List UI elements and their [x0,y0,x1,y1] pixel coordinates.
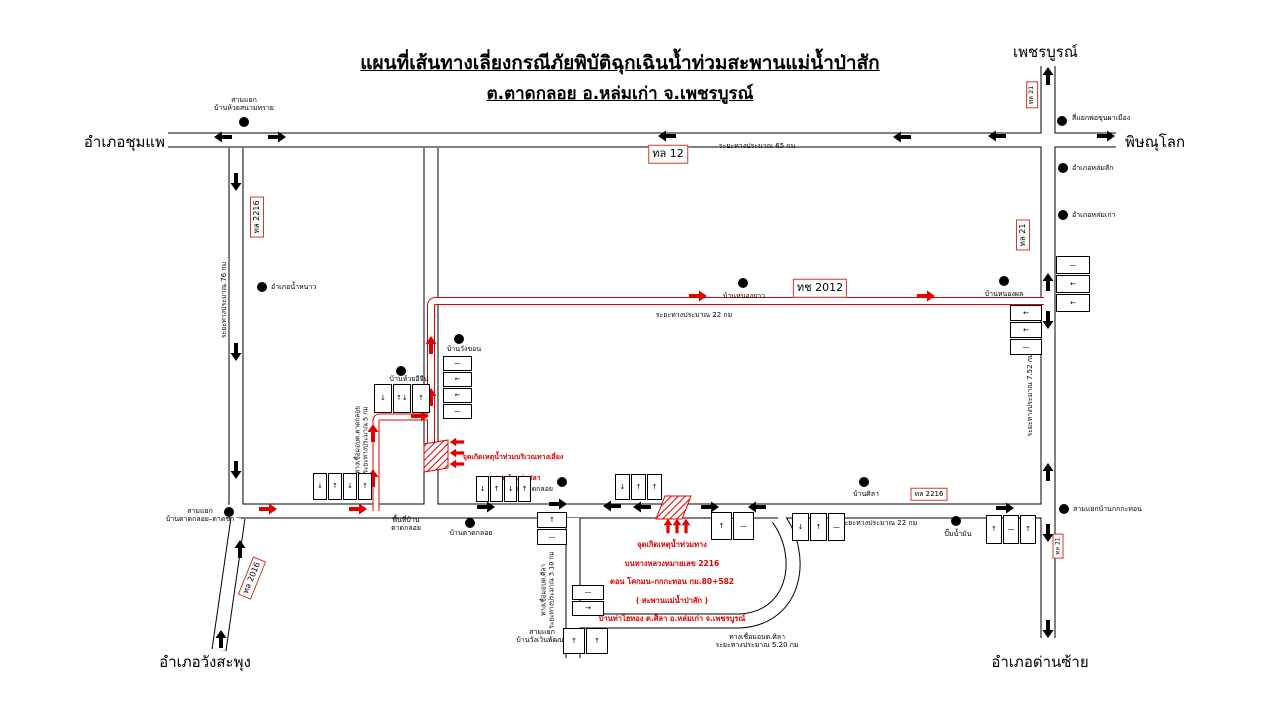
distance-label: ทางเชื่อมอบต.ศิลา ระยะทางประมาณ 5.20 กม [715,633,798,650]
evacuation-route-map: แผนที่เส้นทางเลี่ยงกรณีภัยพิบัติฉุกเฉินน… [0,0,1280,720]
map-title-line2: ต.ตาดกลอย อ.หล่มเก่า จ.เพชรบูรณ์ [340,80,900,107]
directional-sign: ↓↑— [792,513,845,541]
destination-amphoe-chum-phae: อำเภอชุมแพ [84,130,165,154]
flood-note-pasak-bridge: จุดเกิดเหตุน้ำท่วมทาง บนทางหลวงหมายเลข 2… [599,531,746,632]
road-number-badge: ทล 21 [1053,533,1064,558]
place-label: สามแยก บ้านวังเวินพัฒนา [516,628,567,645]
destination-amphoe-wang-saphung: อำเภอวังสะพุง [159,650,251,674]
sign-plate: ↑ [986,515,1002,544]
junction-ban-kok-kathon [1059,504,1069,514]
sign-plate: — [1010,339,1042,355]
sign-plate: ↑ [563,628,585,654]
place-label: อำเภอหล่มเก่า [1072,211,1115,219]
distance-label: ทางเชื่อมอบต.ศิลา ระยะทางประมาณ 3.10 กม [540,551,555,628]
distance-label: ระยะทางประมาณ 22 กม [841,519,918,527]
sign-plate: ← [443,372,472,387]
sign-plate: ↑ [537,512,567,528]
junction-ban-huai-sanam-sai [239,117,249,127]
place-label: สามแยก บ้านตาดกลอย–ตาดข่า [166,507,234,524]
sign-plate: → [572,601,604,616]
flood-note-line1: จุดเกิดเหตุน้ำท่วมทาง [599,540,746,549]
ban-tat-kloi [465,518,475,528]
sign-plate: ↑ [711,512,732,540]
place-label: ปั๊มน้ำมัน [944,530,971,538]
sign-plate: ↑ [358,473,372,500]
flood-note-line2: บนทางหลวงหมายเลข 2216 [599,559,746,568]
sign-plate: ↓ [343,473,357,500]
sign-plate: — [1003,515,1019,544]
sign-plate: ↓ [374,384,392,413]
junction-pho-khun-pha-mueang [1057,116,1067,126]
map-title: แผนที่เส้นทางเลี่ยงกรณีภัยพิบัติฉุกเฉินน… [340,48,900,107]
place-label: พื้นที่บ้าน ตาดกลอย [391,516,421,533]
sign-plate: ↑ [518,476,531,502]
sign-plate: ← [1010,305,1042,321]
sign-plate: ↑ [1020,515,1036,544]
sign-plate: ↓ [615,474,630,500]
sign-plate: ↑↓ [393,384,411,413]
sign-plate: — [828,513,845,541]
sign-plate: ↓ [313,473,327,500]
distance-label: ระยะทางประมาณ 7.52 กม [1026,353,1034,436]
flood-note-line5: บ้านท่าไฮทอง ต.ศิลา อ.หล่มเก่า จ.เพชรบูร… [599,614,746,623]
road-number-badge: ทล 2216 [911,488,948,501]
ban-wang-khon [454,334,464,344]
sign-plate: ← [1056,275,1090,293]
directional-sign: ↑— [537,512,567,545]
sign-plate: ↑ [647,474,662,500]
sign-plate: ↓ [504,476,517,502]
place-label: บ้านศิลา [853,490,879,498]
distance-label: ระยะทางประมาณ 22 กม [656,311,733,319]
road-number-badge: ทช 2012 [793,279,847,298]
road-number-badge: ทล 12 [648,145,688,164]
ban-nong-yao [738,278,748,288]
place-label: สี่แยกพ่อขุนผาเมือง [1072,114,1130,122]
sign-plate: ↑ [586,628,608,654]
amphoe-lom-sak [1058,163,1068,173]
directional-sign: ↓↑↓↑ [313,473,372,500]
sign-plate: — [443,356,472,371]
obt-tat-kloi [557,477,567,487]
directional-sign: ↓↑↑ [615,474,662,500]
amphoe-lom-kao [1058,210,1068,220]
destination-phetchabun: เพชรบูรณ์ [1013,40,1078,64]
ban-sila [859,477,869,487]
directional-sign: ↑—↑ [986,515,1036,544]
sign-plate: ← [443,388,472,403]
directional-sign: ↑— [711,512,754,540]
place-label: บ้านหนองผล [985,290,1024,298]
place-label: สามแยก บ้านห้วยสนามทราย [214,96,274,113]
ban-nong-phon [999,276,1009,286]
flood-hatch-bypass-bridge [424,440,448,472]
distance-label: ระยะทางประมาณ 76 กม [220,262,228,339]
directional-sign: —←← [1056,256,1090,312]
flood-note-line3: ตอน โคกมน–กกกะทอน กม.80+582 [599,577,746,586]
sign-plate: ← [1056,294,1090,312]
place-label: อำเภอหล่มสัก [1072,164,1113,172]
directional-sign: —←←— [443,356,472,419]
directional-sign: ↓↑↓↑ [374,384,430,413]
sign-plate: ↓ [792,513,809,541]
road-number-badge: ทล 21 [1026,82,1038,109]
place-label: บ้านหนองยาว [723,292,765,300]
gas-station [951,516,961,526]
flood-note-line4: ( สะพานแม่น้ำป่าสัก ) [599,596,746,605]
directional-sign: ↑↑ [563,628,608,654]
distance-label: ระยะทางประมาณ 65 กม [719,142,796,150]
place-label: บ้านห้วยอีจีน [390,375,429,383]
sign-plate: ↑ [810,513,827,541]
directional-sign: ←←— [1010,305,1042,355]
place-label: อำเภอน้ำหนาว [271,283,316,291]
place-label: บ้านตาดกลอย [449,529,492,537]
place-label: สามแยกบ้านกกกะทอน [1073,505,1142,513]
road-number-badge: ทล 21 [1016,220,1030,251]
distance-label: ทางเชื่อมอบต.ตาดกลอย ระยะทางประมาณ 5 กม [354,406,369,474]
amphoe-nam-nao [257,282,267,292]
sign-plate: ↑ [412,384,430,413]
sign-plate: — [443,404,472,419]
road-number-badge: ทล 2216 [250,196,264,237]
sign-plate: ← [1010,322,1042,338]
destination-amphoe-dan-sai: อำเภอด่านซ้าย [991,650,1088,674]
sign-plate: — [572,585,604,600]
sign-plate: — [537,529,567,545]
flood-note-bypass-line1: จุดเกิดเหตุน้ำท่วมบริเวณทางเลี่ยง [463,452,563,463]
sign-plate: — [733,512,754,540]
sign-plate: — [1056,256,1090,274]
directional-sign: —→ [572,585,604,616]
map-title-line1: แผนที่เส้นทางเลี่ยงกรณีภัยพิบัติฉุกเฉินน… [340,48,900,78]
sign-plate: ↑ [490,476,503,502]
place-label: บ้านวังขอน [447,345,481,353]
sign-plate: ↓ [476,476,489,502]
directional-sign: ↓↑↓↑ [476,476,531,502]
sign-plate: ↑ [631,474,646,500]
destination-phitsanulok: พิษณุโลก [1125,130,1185,154]
sign-plate: ↑ [328,473,342,500]
